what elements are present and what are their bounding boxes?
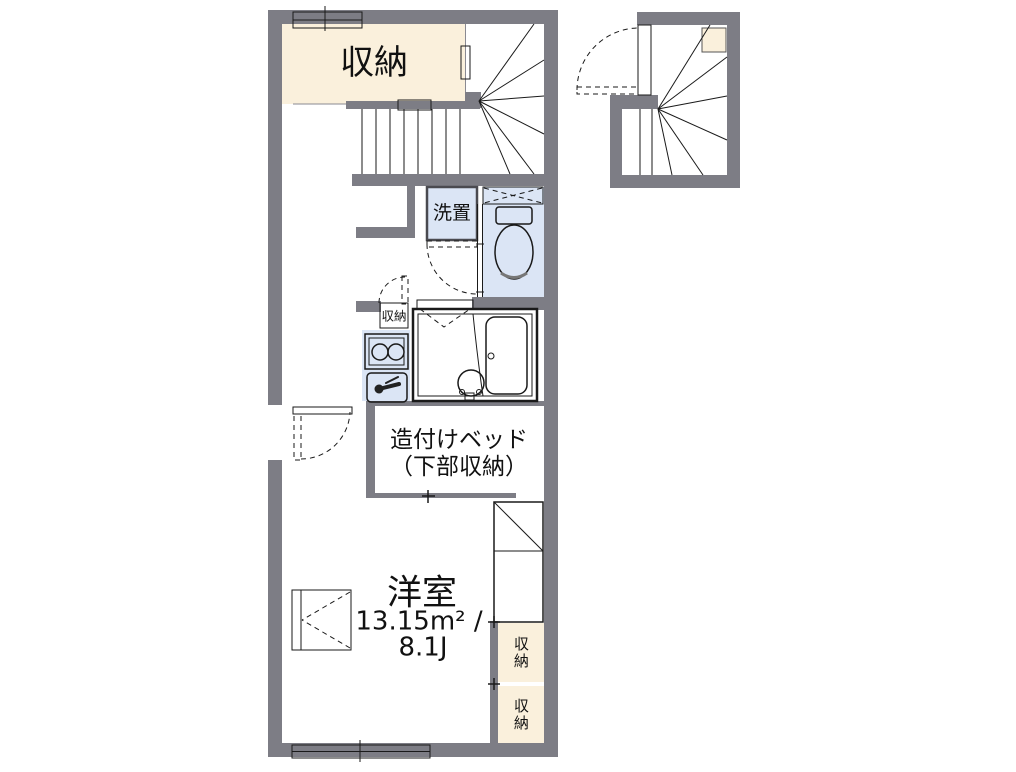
bed-label-line2: （下部収納） (390, 455, 528, 479)
annex-wall-stub (610, 95, 658, 109)
kitchen-storage-label: 収納 (381, 309, 406, 322)
stair-top-wall (346, 101, 480, 109)
entrance-door-swing (301, 412, 350, 459)
annex-wall-bottom (610, 175, 740, 188)
room-area-tatami-label: 8.1J (398, 634, 447, 661)
casement-window (292, 590, 351, 650)
wall-left-lower (268, 460, 282, 757)
kitchen (362, 276, 410, 402)
annex-wall-top (637, 12, 740, 25)
wall-left-upper (268, 10, 282, 405)
annex-door-opening (638, 25, 651, 95)
kitchen-wall-stub (356, 301, 381, 312)
closet-top-label: 収納 (340, 46, 408, 82)
closet-right-upper-label: 収納 (512, 636, 528, 670)
bathtub-icon (486, 317, 527, 394)
annex-door-leaf (577, 87, 638, 94)
stair-winder-lines (479, 24, 544, 174)
stair-treads (362, 109, 460, 174)
bath-room-box (413, 309, 537, 401)
closet-right-lower-label: 収納 (512, 698, 528, 732)
bed-bottom-partition (370, 493, 516, 498)
bath-divider-curve (473, 314, 483, 396)
toilet-partition (476, 204, 484, 297)
bed-left-wall (366, 406, 375, 498)
stair-winder-pivot-stub (465, 92, 481, 108)
bathtub-handle (488, 353, 494, 359)
entrance-door (293, 407, 352, 460)
bath-room-inner (418, 314, 532, 396)
toilet-room (476, 187, 544, 297)
storage-door-swing (379, 277, 405, 303)
washer-label: 洗置 (433, 204, 471, 224)
washroom-door-swing (427, 244, 477, 294)
annex-entry-door (577, 25, 651, 95)
annex-wall-right (727, 12, 740, 188)
entrance-door-leaf (294, 414, 301, 460)
wall-right (544, 10, 558, 757)
washroom-door-leaf (427, 241, 477, 247)
storage-door-leaf (402, 276, 408, 304)
stair-bottom-wall (352, 174, 544, 186)
refrigerator-space (494, 502, 543, 622)
entrance-frame (293, 407, 352, 414)
bathroom (413, 300, 537, 401)
floor-plan-drawing (0, 0, 1016, 772)
bed-label-line1: 造付けベッド (390, 428, 528, 452)
washroom-wall-horizontal (356, 227, 415, 238)
annex-door-swing (577, 28, 639, 90)
bed-partition-tick (422, 490, 435, 503)
stair-annex (577, 12, 740, 188)
floor-plan-canvas: 収納 洗置 収納 造付けベッド （下部収納） 洋室 13.15m² / 8.1J… (0, 0, 1016, 772)
